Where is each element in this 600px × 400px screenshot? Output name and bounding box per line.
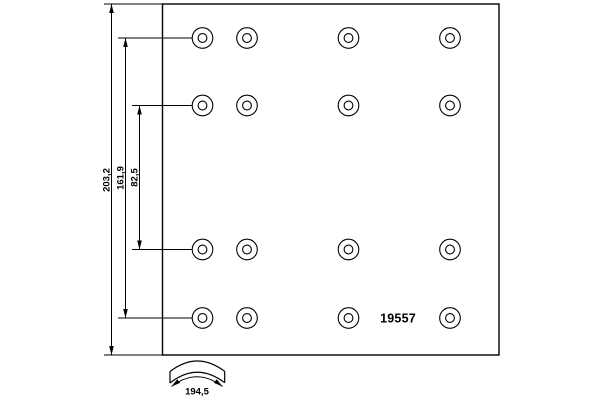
rivet-hole-outer <box>192 28 213 49</box>
rivet-hole-outer <box>237 239 258 260</box>
dimension-arrowhead <box>123 309 128 318</box>
brake-lining-drawing: 203,2161,982,5 19557 194,5 <box>0 0 600 400</box>
lining-outline <box>163 4 500 355</box>
dimension-arrowhead <box>137 241 142 250</box>
dimension-arrowhead <box>123 38 128 47</box>
rivet-hole-outer <box>338 95 359 116</box>
rivet-hole-inner <box>243 245 252 254</box>
rivet-hole-outer <box>192 239 213 260</box>
rivet-hole-inner <box>243 34 252 43</box>
dimension-label: 161,9 <box>116 166 127 190</box>
lining-outline-group <box>163 4 500 355</box>
dimension-arrowhead <box>109 346 114 355</box>
part-number: 19557 <box>380 312 416 326</box>
arc-width-dimension-line <box>172 377 223 387</box>
vertical-dimensions-group: 203,2161,982,5 <box>102 4 142 355</box>
dimension-label: 82,5 <box>130 168 141 187</box>
rivet-hole-inner <box>446 101 455 110</box>
rivet-hole-outer <box>237 308 258 329</box>
rivet-hole-outer <box>338 308 359 329</box>
rivet-hole-outer <box>440 308 461 329</box>
rivet-hole-inner <box>446 34 455 43</box>
rivet-hole-outer <box>237 95 258 116</box>
arc-width-label: 194,5 <box>185 387 209 398</box>
rivet-hole-outer <box>440 95 461 116</box>
dimension-arrowhead <box>109 4 114 13</box>
rivet-hole-inner <box>344 245 353 254</box>
dimension-label: 203,2 <box>102 168 113 192</box>
rivet-hole-inner <box>446 314 455 323</box>
rivet-hole-inner <box>344 314 353 323</box>
rivet-hole-inner <box>198 101 207 110</box>
rivet-hole-inner <box>198 34 207 43</box>
rivet-hole-outer <box>192 95 213 116</box>
technical-drawing-page: 203,2161,982,5 19557 194,5 <box>0 0 600 400</box>
rivet-hole-inner <box>243 314 252 323</box>
rivet-hole-inner <box>446 245 455 254</box>
rivet-hole-inner <box>344 101 353 110</box>
dimension-arrowhead <box>137 106 142 115</box>
lining-curvature-symbol: 194,5 <box>170 361 225 398</box>
rivet-hole-inner <box>243 101 252 110</box>
rivet-hole-outer <box>440 28 461 49</box>
rivet-hole-inner <box>198 314 207 323</box>
rivet-hole-outer <box>192 308 213 329</box>
arc-width-arrowheads <box>172 379 223 386</box>
rivet-hole-inner <box>344 34 353 43</box>
rivet-hole-outer <box>440 239 461 260</box>
rivet-hole-inner <box>198 245 207 254</box>
rivet-hole-outer <box>237 28 258 49</box>
curvature-top-arc <box>170 361 225 372</box>
rivet-hole-outer <box>338 239 359 260</box>
rivet-holes-group <box>192 28 460 329</box>
rivet-hole-outer <box>338 28 359 49</box>
